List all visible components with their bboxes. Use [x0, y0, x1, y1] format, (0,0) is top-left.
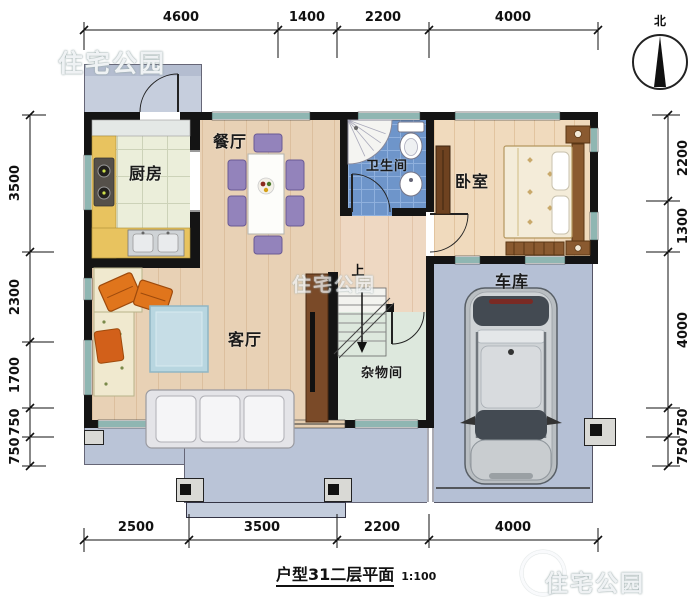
- dim-top-4: 4000: [483, 10, 543, 26]
- bedroom-label: 卧室: [442, 168, 502, 192]
- dim-bottom-2: 3500: [232, 520, 292, 536]
- dining-label: 餐厅: [200, 128, 260, 152]
- plan-caption: 户型31二层平面1:100: [276, 561, 436, 585]
- dim-top-2: 1400: [277, 10, 337, 26]
- dim-left-1: 3500: [8, 161, 24, 205]
- storage-label: 杂物间: [344, 362, 420, 381]
- dim-bottom-4: 4000: [483, 520, 543, 536]
- dim-right-1: 2200: [676, 136, 692, 180]
- caption-scale: 1:100: [401, 570, 436, 583]
- caption-title: 户型31二层平面: [276, 565, 394, 587]
- dim-right-3: 4000: [676, 308, 692, 352]
- north-label: 北: [646, 12, 674, 29]
- dim-bottom-1: 2500: [106, 520, 166, 536]
- watermark-center: 住宅公园: [292, 270, 376, 297]
- dim-bottom-3: 2200: [352, 520, 412, 536]
- text-layer: 厨房 餐厅 卫生间 卧室 客厅 杂物间 车库 上 4600 1400 2200 …: [0, 0, 700, 600]
- kitchen-label: 厨房: [116, 160, 176, 184]
- floor-plan-canvas: 厨房 餐厅 卫生间 卧室 客厅 杂物间 车库 上 4600 1400 2200 …: [0, 0, 700, 600]
- dim-top-3: 2200: [353, 10, 413, 26]
- bathroom-label: 卫生间: [349, 155, 425, 174]
- watermark-bottom-right: 住宅公园: [545, 564, 645, 598]
- dim-left-2: 2300: [8, 275, 24, 319]
- dim-left-5: 750: [8, 429, 24, 473]
- watermark-top-left: 住宅公园: [58, 44, 166, 80]
- dim-right-5: 750: [676, 429, 692, 473]
- garage-label: 车库: [482, 268, 542, 292]
- dim-right-2: 1300: [676, 204, 692, 248]
- living-label: 客厅: [215, 326, 275, 350]
- dim-top-1: 4600: [151, 10, 211, 26]
- dim-left-3: 1700: [8, 353, 24, 397]
